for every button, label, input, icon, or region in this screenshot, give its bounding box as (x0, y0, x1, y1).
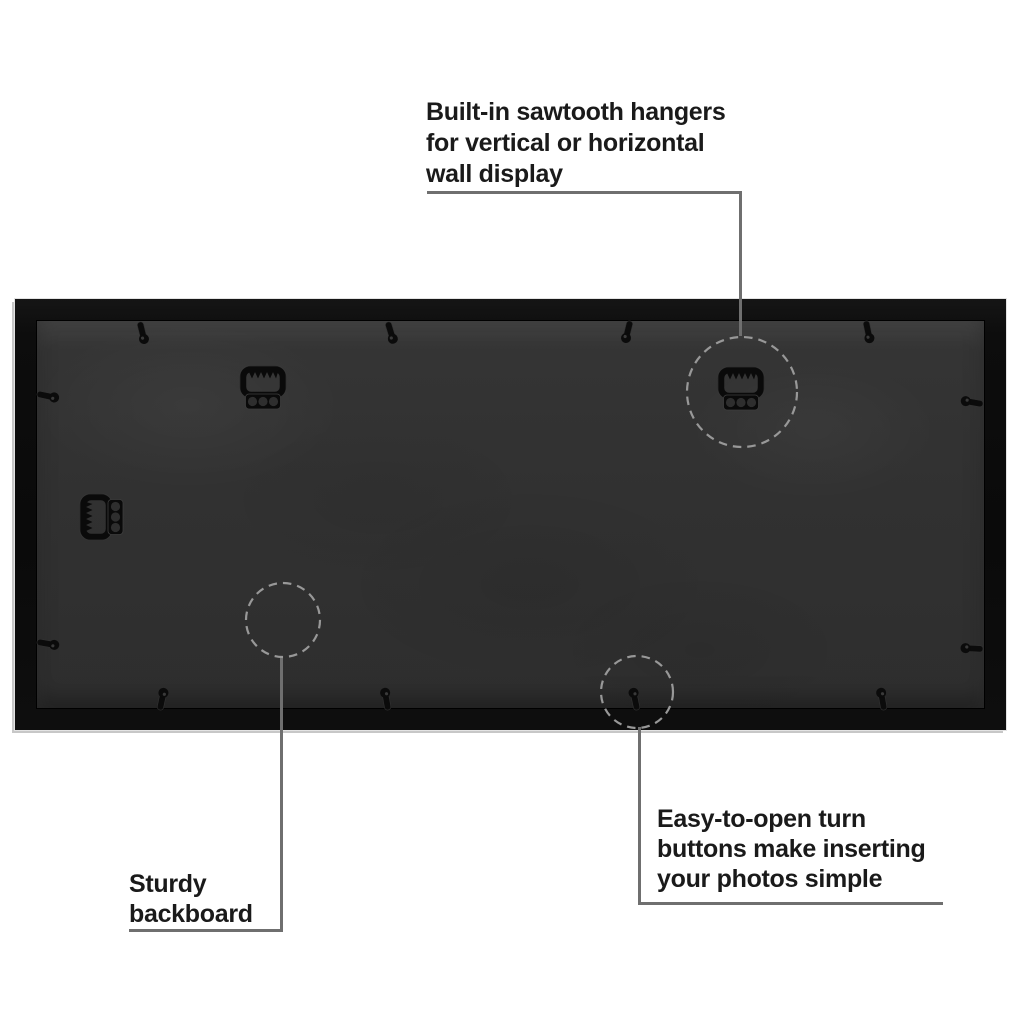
dashed-highlight-circle-backboard (246, 583, 320, 657)
turn-button-icon (620, 320, 635, 344)
callout-text-line: your photos simple (657, 864, 925, 894)
sawtooth-hanger-icon-left-vertical (80, 494, 123, 540)
callout-text-line: Sturdy (129, 869, 253, 899)
callout-text-line: backboard (129, 899, 253, 929)
turn-button-icon (155, 687, 169, 711)
dashed-highlight-circle-hanger (687, 337, 797, 447)
callout-text-line: Built-in sawtooth hangers (426, 97, 725, 128)
turn-button-icon (960, 643, 983, 654)
turn-button-icon (36, 637, 60, 651)
turn-button-icon (383, 321, 399, 345)
sawtooth-hanger-icon-top-right (718, 367, 764, 410)
callout-line-hangers (427, 193, 741, 337)
sawtooth-hanger-icon-top-left (240, 366, 286, 409)
turn-button-icon (379, 687, 393, 711)
product-diagram: Built-in sawtooth hangers for vertical o… (0, 0, 1024, 1024)
callout-text-line: for vertical or horizontal (426, 128, 725, 159)
turn-button-icon (861, 320, 875, 344)
callout-text-line: wall display (426, 159, 725, 190)
turn-button-icon (36, 389, 60, 403)
callout-text-hangers: Built-in sawtooth hangers for vertical o… (426, 97, 725, 190)
turn-button-icon (875, 687, 889, 711)
turn-button-icon (628, 687, 642, 711)
turn-button-icon (960, 395, 984, 409)
callout-text-turn-buttons: Easy-to-open turn buttons make inserting… (657, 804, 925, 894)
callout-text-line: buttons make inserting (657, 834, 925, 864)
callout-text-backboard: Sturdy backboard (129, 869, 253, 929)
turn-button-icon (135, 321, 150, 345)
callout-text-line: Easy-to-open turn (657, 804, 925, 834)
